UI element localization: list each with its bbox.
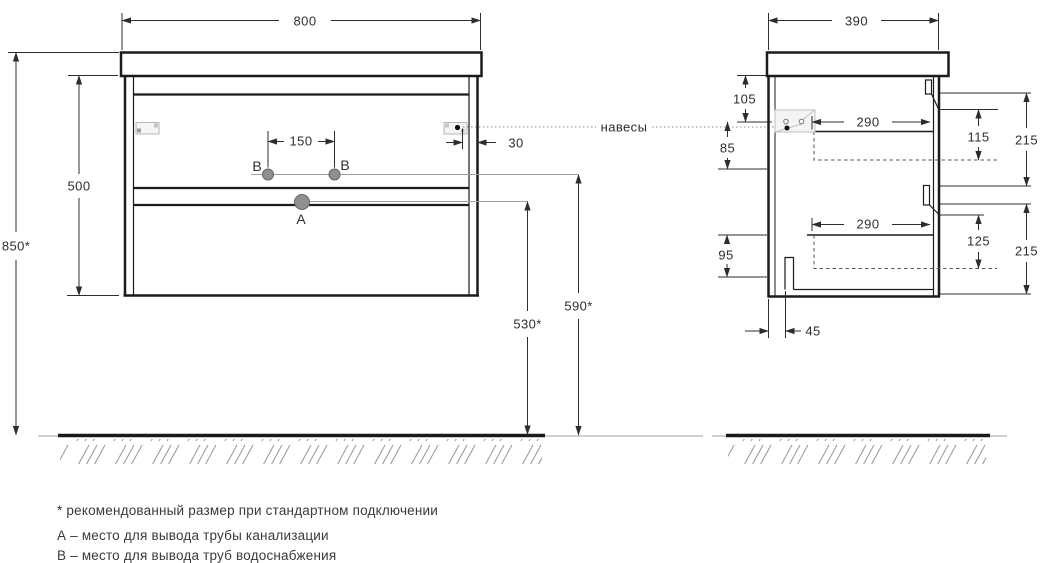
front-countertop <box>121 53 482 77</box>
hanger-point-dot <box>455 125 460 130</box>
outlet-points <box>251 169 578 210</box>
handle-notch-bottom <box>924 186 930 206</box>
side-view-outline <box>767 53 949 298</box>
dim-hanger-to-supply: 85 <box>718 141 737 154</box>
floor-hatching-right <box>728 439 986 464</box>
dim-hanger-from-top: 105 <box>731 92 758 105</box>
drain-pipe-outline <box>785 258 794 290</box>
dim-mounting-height: 850* <box>0 240 32 253</box>
dim-side-depth: 390 <box>843 14 870 27</box>
dim-hanger-offset: 30 <box>506 136 525 149</box>
drawing-geometry <box>0 0 1043 563</box>
footnote-recommended-size: * рекомендованный размер при стандартном… <box>57 504 438 519</box>
label-hangers: навесы <box>599 121 650 134</box>
dim-drawer-top-clearance: 115 <box>966 130 992 143</box>
dim-carcass-height: 500 <box>66 180 93 193</box>
vanity-installation-drawing: 800 500 850* 150 30 530* 590* В В А 390 … <box>0 0 1043 563</box>
floor-hatching-left <box>60 439 542 464</box>
side-countertop <box>767 53 949 77</box>
dim-supply-spacing: 150 <box>288 135 315 148</box>
dim-drain-outlet-height: 530* <box>511 318 543 331</box>
side-hanger-bracket <box>775 110 815 132</box>
handle-notch-top <box>926 80 932 94</box>
dim-supply-outlet-height: 590* <box>562 300 594 313</box>
dim-bottom-section: 95 <box>716 249 735 262</box>
footnote-point-a: А – место для вывода трубы канализации <box>57 529 329 544</box>
side-hanger-point-dot <box>785 126 790 131</box>
dim-drain-from-back: 45 <box>803 324 822 337</box>
floor <box>38 436 1007 465</box>
label-point-b-right: В <box>340 158 349 172</box>
label-point-a: А <box>296 212 305 226</box>
dim-drawer-bottom-clearance: 125 <box>965 235 992 248</box>
dim-drawer-top-front: 215 <box>1013 133 1040 146</box>
front-hanger-brackets <box>136 123 467 135</box>
point-b-right <box>329 169 340 180</box>
label-point-b-left: В <box>252 159 261 173</box>
point-a <box>295 195 310 210</box>
dim-drawer-bottom-front: 215 <box>1013 245 1040 258</box>
dim-front-width: 800 <box>292 14 319 27</box>
dim-drawer-bottom-depth: 290 <box>855 218 882 231</box>
footnote-point-b: В – место для вывода труб водоснабжения <box>57 549 336 563</box>
dim-drawer-top-depth: 290 <box>855 115 882 128</box>
point-b-left <box>263 169 274 180</box>
